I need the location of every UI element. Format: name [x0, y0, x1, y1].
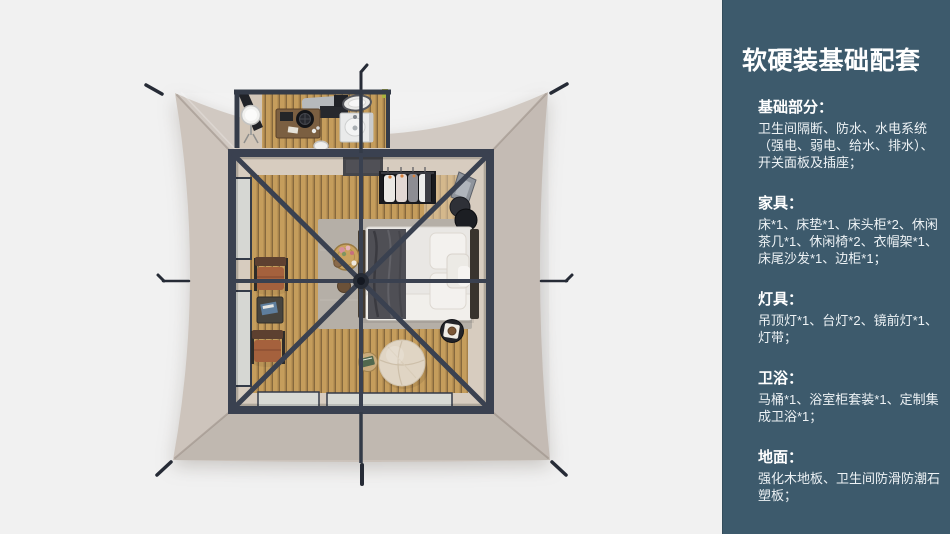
magazine-table	[257, 297, 283, 323]
stake-top-right	[551, 84, 567, 93]
spec-section-bathroom: 卫浴： 马桶*1、浴室柜套装*1、定制集 成卫浴*1；	[758, 369, 940, 425]
section-heading: 地面：	[758, 448, 940, 467]
spec-section-furniture: 家具： 床*1、床垫*1、床头柜*2、休闲 茶几*1、休闲椅*2、衣帽架*1、 …	[758, 194, 940, 267]
stake-top-left	[146, 85, 162, 94]
tent-floorplan-illustration	[0, 0, 722, 534]
clothes-rack	[379, 167, 436, 204]
section-heading: 基础部分：	[758, 98, 940, 117]
section-body: 强化木地板、卫生间防滑防潮石 塑板；	[758, 470, 940, 504]
armchair-top	[254, 257, 288, 295]
section-heading: 灯具：	[758, 290, 940, 309]
spec-section-lighting: 灯具： 吊顶灯*1、台灯*2、镜前灯*1、 灯带；	[758, 290, 940, 346]
section-body: 马桶*1、浴室柜套装*1、定制集 成卫浴*1；	[758, 391, 940, 425]
spec-sections: 基础部分： 卫生间隔断、防水、水电系统 （强电、弱电、给水、排水）、 开关面板及…	[758, 98, 940, 504]
page: 软硬装基础配套 基础部分： 卫生间隔断、防水、水电系统 （强电、弱电、给水、排水…	[0, 0, 950, 534]
section-heading: 卫浴：	[758, 369, 940, 388]
stake-bottom-left	[157, 462, 171, 475]
section-body: 卫生间隔断、防水、水电系统 （强电、弱电、给水、排水）、 开关面板及插座；	[758, 120, 940, 171]
section-body: 吊顶灯*1、台灯*2、镜前灯*1、 灯带；	[758, 312, 940, 346]
section-body: 床*1、床垫*1、床头柜*2、休闲 茶几*1、休闲椅*2、衣帽架*1、 床尾沙发…	[758, 216, 940, 267]
spec-section-flooring: 地面： 强化木地板、卫生间防滑防潮石 塑板；	[758, 448, 940, 504]
spec-section-basics: 基础部分： 卫生间隔断、防水、水电系统 （强电、弱电、给水、排水）、 开关面板及…	[758, 98, 940, 171]
bathroom-vanity-desk	[276, 109, 320, 138]
bed	[358, 227, 479, 323]
washbasin-unit	[340, 94, 373, 142]
stake-bottom-right	[552, 462, 566, 475]
headboard	[470, 229, 479, 319]
section-heading: 家具：	[758, 194, 940, 213]
panel-title: 软硬装基础配套	[742, 46, 938, 76]
info-panel: 软硬装基础配套 基础部分： 卫生间隔断、防水、水电系统 （强电、弱电、给水、排水…	[722, 0, 950, 534]
round-tray-table	[441, 320, 464, 343]
bathroom	[234, 89, 391, 151]
